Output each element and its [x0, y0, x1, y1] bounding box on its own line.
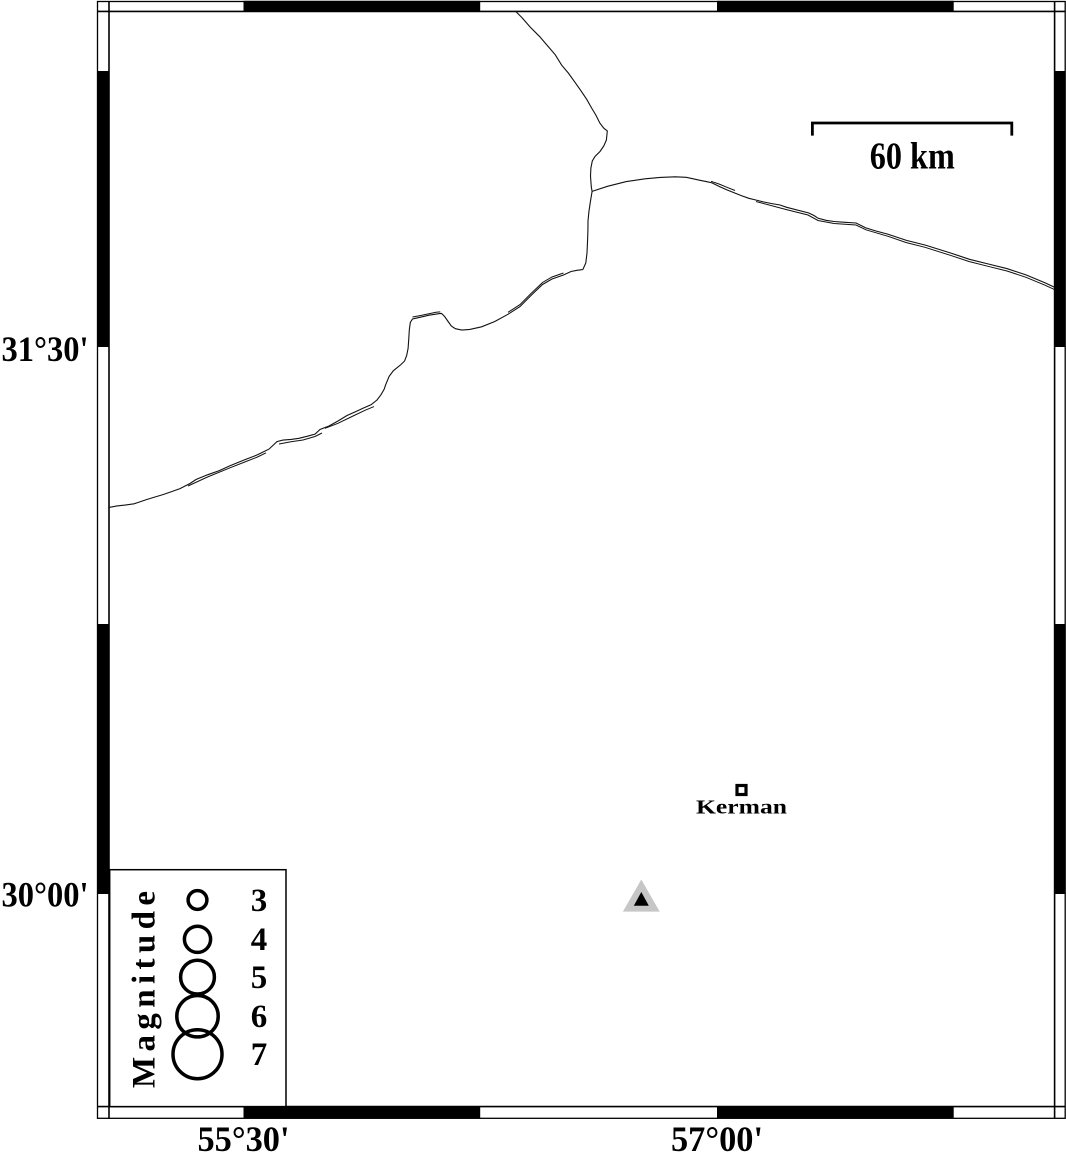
svg-text:Magnitude: Magnitude	[127, 891, 163, 1088]
svg-text:55°30': 55°30'	[198, 1119, 290, 1156]
svg-text:60 km: 60 km	[870, 136, 955, 178]
svg-text:3: 3	[251, 883, 268, 919]
svg-text:7: 7	[251, 1037, 268, 1073]
svg-text:31°30': 31°30'	[2, 329, 89, 369]
svg-text:6: 6	[251, 999, 268, 1035]
svg-text:Kerman: Kerman	[696, 797, 787, 819]
svg-text:4: 4	[251, 922, 268, 958]
svg-text:5: 5	[251, 960, 268, 996]
svg-text:30°00': 30°00'	[2, 875, 89, 915]
svg-text:57°00': 57°00'	[671, 1119, 763, 1156]
